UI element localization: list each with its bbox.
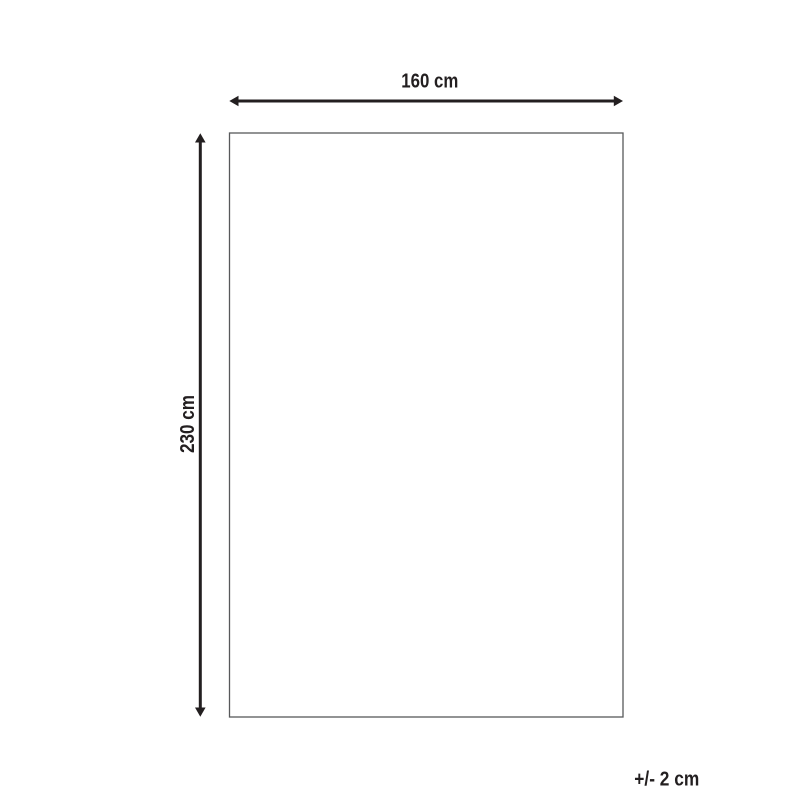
svg-text:160 cm: 160 cm bbox=[401, 71, 458, 93]
svg-text:230 cm: 230 cm bbox=[177, 395, 199, 453]
svg-text:+/- 2 cm: +/- 2 cm bbox=[634, 769, 699, 791]
